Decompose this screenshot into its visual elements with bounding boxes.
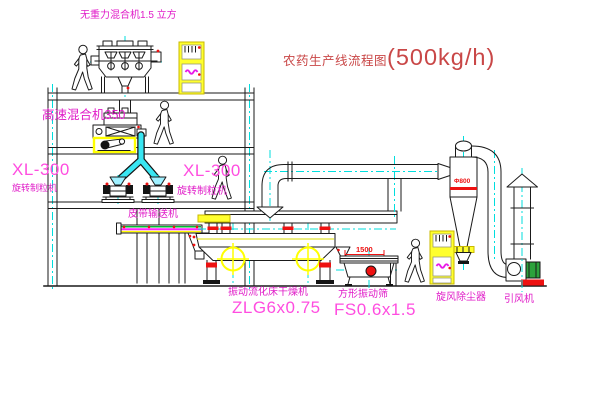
granulator-left [102, 175, 134, 205]
label-belt-conveyor: 皮带输送机 [128, 210, 178, 220]
control-cabinet-lower [430, 231, 454, 284]
granulator-right [142, 175, 174, 205]
control-cabinet-upper [179, 42, 204, 94]
title-text: 农药生产线流程图 [283, 54, 387, 68]
induced-draft-fan [506, 259, 544, 286]
label-sieve-model: FS0.6x1.5 [334, 301, 416, 318]
label-gravity-mixer: 无重力混合机1.5 立方 [80, 11, 177, 21]
mixer-paddles [105, 52, 145, 70]
label-cyclone: 旋风除尘器 [436, 293, 486, 303]
label-granulator-right-model: XL-300 [183, 162, 241, 179]
label-high-speed-mixer: 高速混合机350 [42, 109, 125, 122]
flow-diagram-canvas: 农药生产线流程图(500kg/h) 无重力混合机1.5 立方 高速混合机350 … [0, 0, 600, 403]
drawing-title: 农药生产线流程图(500kg/h) [283, 44, 495, 71]
label-dryer-name: 振动流化床干燥机 [228, 288, 308, 298]
label-granulator-left-name: 旋转制粒机 [12, 184, 57, 193]
label-granulator-right-name: 旋转制粒机 [177, 187, 227, 197]
label-granulator-left-model: XL-300 [12, 161, 70, 178]
title-capacity: (500kg/h) [387, 44, 495, 70]
label-sieve-name: 方形振动筛 [338, 290, 388, 300]
vibrating-sieve [336, 248, 399, 289]
dimension-sieve-1500: 1500 [356, 246, 373, 254]
person-top-floor [72, 45, 92, 90]
person-second-floor [154, 101, 173, 144]
exhaust-duct [257, 150, 450, 221]
label-dryer-model: ZLG6x0.75 [232, 299, 321, 316]
mixer-drive-box [94, 138, 135, 152]
belt-conveyor [117, 223, 203, 283]
label-fan: 引风机 [504, 295, 534, 305]
dimension-cyclone: Φ800 [454, 179, 470, 186]
person-ground [405, 239, 424, 282]
